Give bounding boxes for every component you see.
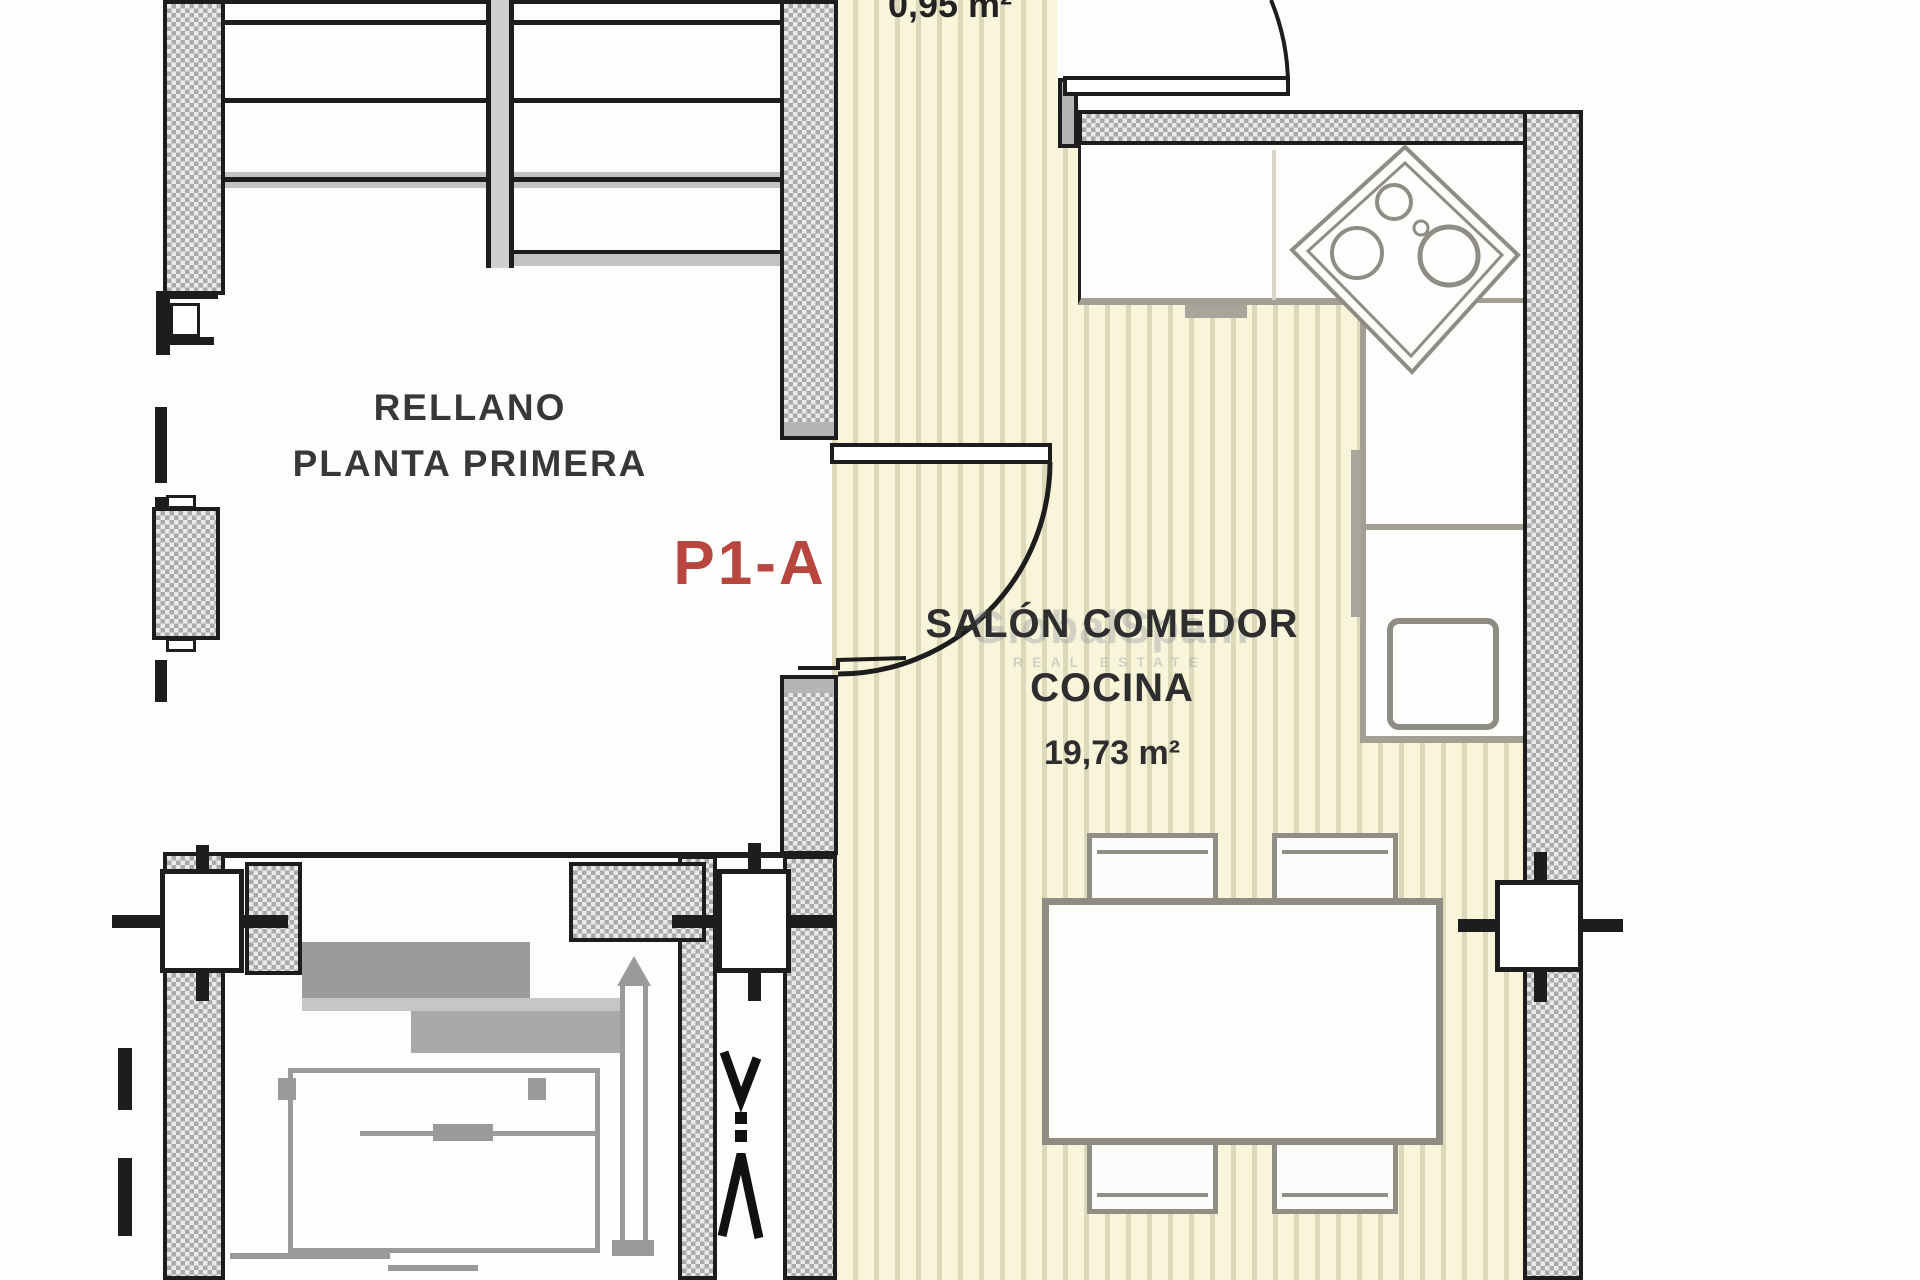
elevator-landing-door-bar1 [302, 942, 530, 998]
wall-stairwell-right-upper [780, 0, 838, 440]
elevator-rail-base [612, 1240, 654, 1256]
door-jamb [1058, 78, 1078, 148]
stair-tread [486, 250, 780, 254]
elevator-guide-rail-right [643, 985, 648, 1255]
axis-tick [244, 915, 288, 928]
axis-dot [155, 497, 167, 510]
axis-tick [672, 915, 717, 928]
axis-dash [118, 1158, 132, 1236]
stair-tread [225, 20, 486, 25]
wall-cap [784, 679, 834, 693]
shaft-floor-line1 [230, 1253, 390, 1259]
kitchen-counter-divider [1272, 150, 1276, 300]
elevator-knob-left [278, 1078, 296, 1100]
wall-right-exterior [1523, 110, 1583, 1280]
shaft-floor-line2 [388, 1265, 478, 1271]
pillar-left [152, 507, 220, 640]
wall-rellano-south-line [225, 852, 785, 858]
elevator-knob-right [528, 1078, 546, 1100]
kitchen-counter-top [1078, 145, 1523, 305]
axis-tick [1534, 970, 1547, 1002]
axis-tick [1534, 852, 1547, 880]
salon-area-label: 19,73 m² [852, 734, 1372, 773]
dining-table [1042, 898, 1443, 1145]
elevator-landing-door-bar2 [302, 998, 623, 1011]
rellano-line1: RELLANO [374, 387, 567, 428]
room-label-rellano: RELLANO PLANTA PRIMERA [250, 380, 690, 491]
wall-break-marks [722, 1052, 759, 1238]
elevator-car [288, 1068, 600, 1253]
axis-marker-left [160, 869, 244, 973]
counter-section-divider [1366, 524, 1523, 530]
axis-tick [196, 845, 209, 871]
wall-cap [784, 422, 834, 436]
wall-end-detail [170, 337, 214, 345]
rellano-line2: PLANTA PRIMERA [293, 443, 648, 484]
axis-tick [1458, 919, 1498, 932]
wall-kitchen-top [1078, 110, 1532, 145]
axis-tick [748, 843, 761, 871]
elevator-rail-tip [617, 956, 651, 986]
axis-dash [155, 660, 167, 702]
wall-end-notch [170, 303, 200, 337]
door-kitchen-top [1065, 0, 1288, 94]
salon-label-line1: SALÓN COMEDOR [852, 602, 1372, 647]
counter-lip [1351, 450, 1361, 617]
axis-marker-middle [717, 869, 791, 973]
stair-tread [225, 0, 486, 4]
stair-tread [225, 98, 486, 103]
elevator-car-door-bar [433, 1124, 493, 1141]
axis-tick [196, 971, 209, 1001]
axis-marker-right [1495, 880, 1583, 972]
floor-plan: GlobalSpain REAL ESTATE RELLANO PLANTA P… [0, 0, 1920, 1280]
unit-label: P1-A [640, 528, 860, 599]
pillar-notch-top [166, 495, 196, 509]
sink-symbol [1387, 618, 1499, 730]
axis-tick [791, 915, 837, 928]
elevator-landing-door-bar3 [411, 1011, 623, 1053]
dishwasher-handle [1185, 305, 1247, 318]
elevator-guide-rail-left [620, 985, 625, 1255]
pillar-notch-bottom [166, 638, 196, 652]
axis-dash [155, 407, 167, 483]
stair-tread [514, 0, 780, 4]
chair-bottom-left [1087, 1138, 1218, 1214]
wall-left-stairwell [163, 0, 225, 295]
stair-tread [514, 20, 780, 25]
axis-tick [112, 915, 160, 928]
salon-label-line2: COCINA [852, 666, 1372, 711]
wall-end-detail [156, 295, 170, 355]
stair-center-divider [486, 0, 514, 268]
patinillo-area-label: 0,95 m² [845, 0, 1055, 26]
axis-tick [748, 971, 761, 1001]
wall-stairwell-right-mid [780, 675, 838, 855]
chair-bottom-right [1272, 1138, 1398, 1214]
stair-tread [514, 98, 780, 103]
axis-tick [1583, 919, 1623, 932]
axis-dash [118, 1048, 132, 1110]
wall-shaft-top-b [569, 862, 706, 942]
